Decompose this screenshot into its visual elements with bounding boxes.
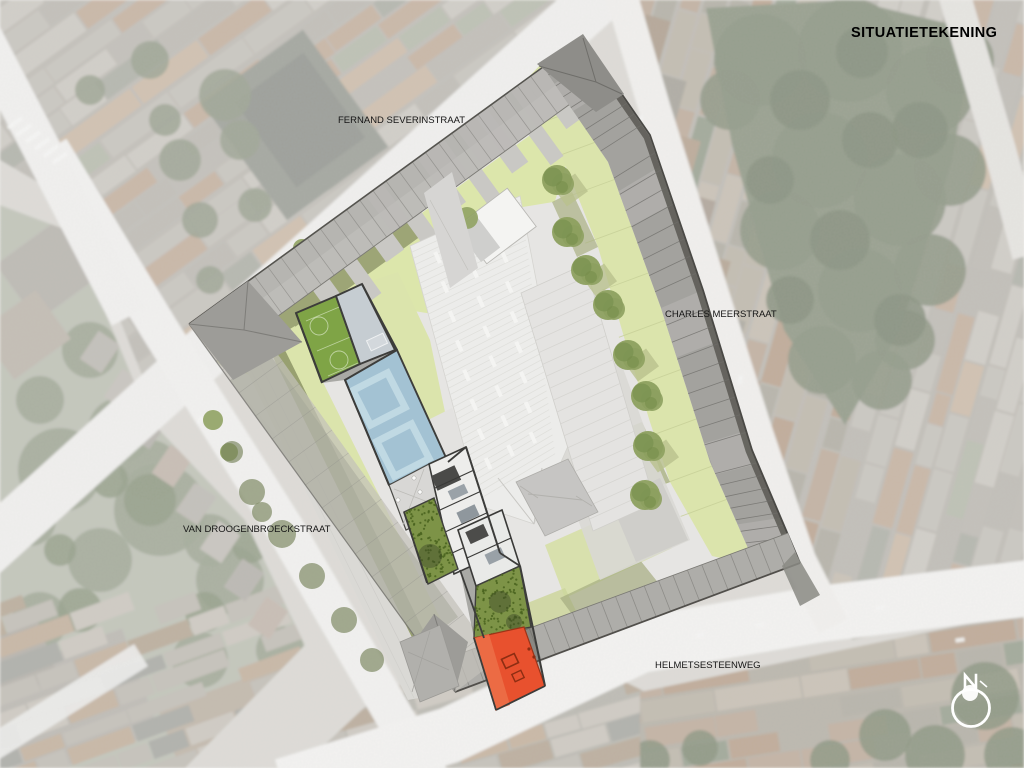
svg-text:SITUATIETEKENING: SITUATIETEKENING bbox=[851, 25, 997, 41]
svg-text:VAN DROOGENBROECKSTRAAT: VAN DROOGENBROECKSTRAAT bbox=[183, 524, 331, 535]
svg-text:FERNAND SEVERINSTRAAT: FERNAND SEVERINSTRAAT bbox=[338, 115, 465, 126]
svg-text:CHARLES MEERSTRAAT: CHARLES MEERSTRAAT bbox=[665, 309, 777, 320]
svg-text:HELMETSESTEENWEG: HELMETSESTEENWEG bbox=[655, 660, 761, 671]
